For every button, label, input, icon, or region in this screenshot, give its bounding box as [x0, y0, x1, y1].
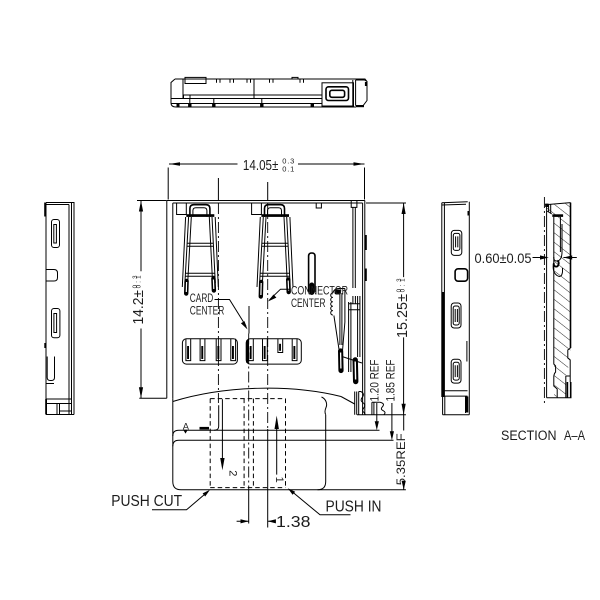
svg-text:1.20 REF: 1.20 REF [368, 360, 382, 402]
svg-text:15.25±: 15.25± [395, 294, 411, 338]
svg-text:CENTER: CENTER [190, 305, 225, 317]
svg-text:1: 1 [273, 477, 285, 483]
svg-text:0.1: 0.1 [136, 275, 143, 289]
svg-text:0.60±0.05: 0.60±0.05 [475, 250, 532, 266]
svg-text:CARD: CARD [190, 293, 214, 305]
svg-text:14.2±: 14.2± [131, 290, 147, 325]
svg-text:0.1: 0.1 [400, 278, 407, 293]
svg-text:0.1: 0.1 [282, 164, 294, 173]
svg-text:SECTION: SECTION [501, 428, 557, 443]
svg-text:A–A: A–A [564, 428, 585, 443]
svg-text:CENTER: CENTER [291, 298, 326, 310]
svg-text:1.85 REF: 1.85 REF [383, 360, 397, 402]
svg-text:PUSH CUT: PUSH CUT [111, 493, 182, 510]
svg-text:PUSH IN: PUSH IN [326, 499, 382, 516]
svg-text:1.38: 1.38 [276, 514, 311, 531]
svg-text:5.35REF: 5.35REF [394, 433, 408, 485]
svg-text:CONNECTOR: CONNECTOR [291, 285, 348, 297]
svg-text:14.05±: 14.05± [243, 158, 279, 174]
svg-text:2: 2 [227, 470, 239, 476]
